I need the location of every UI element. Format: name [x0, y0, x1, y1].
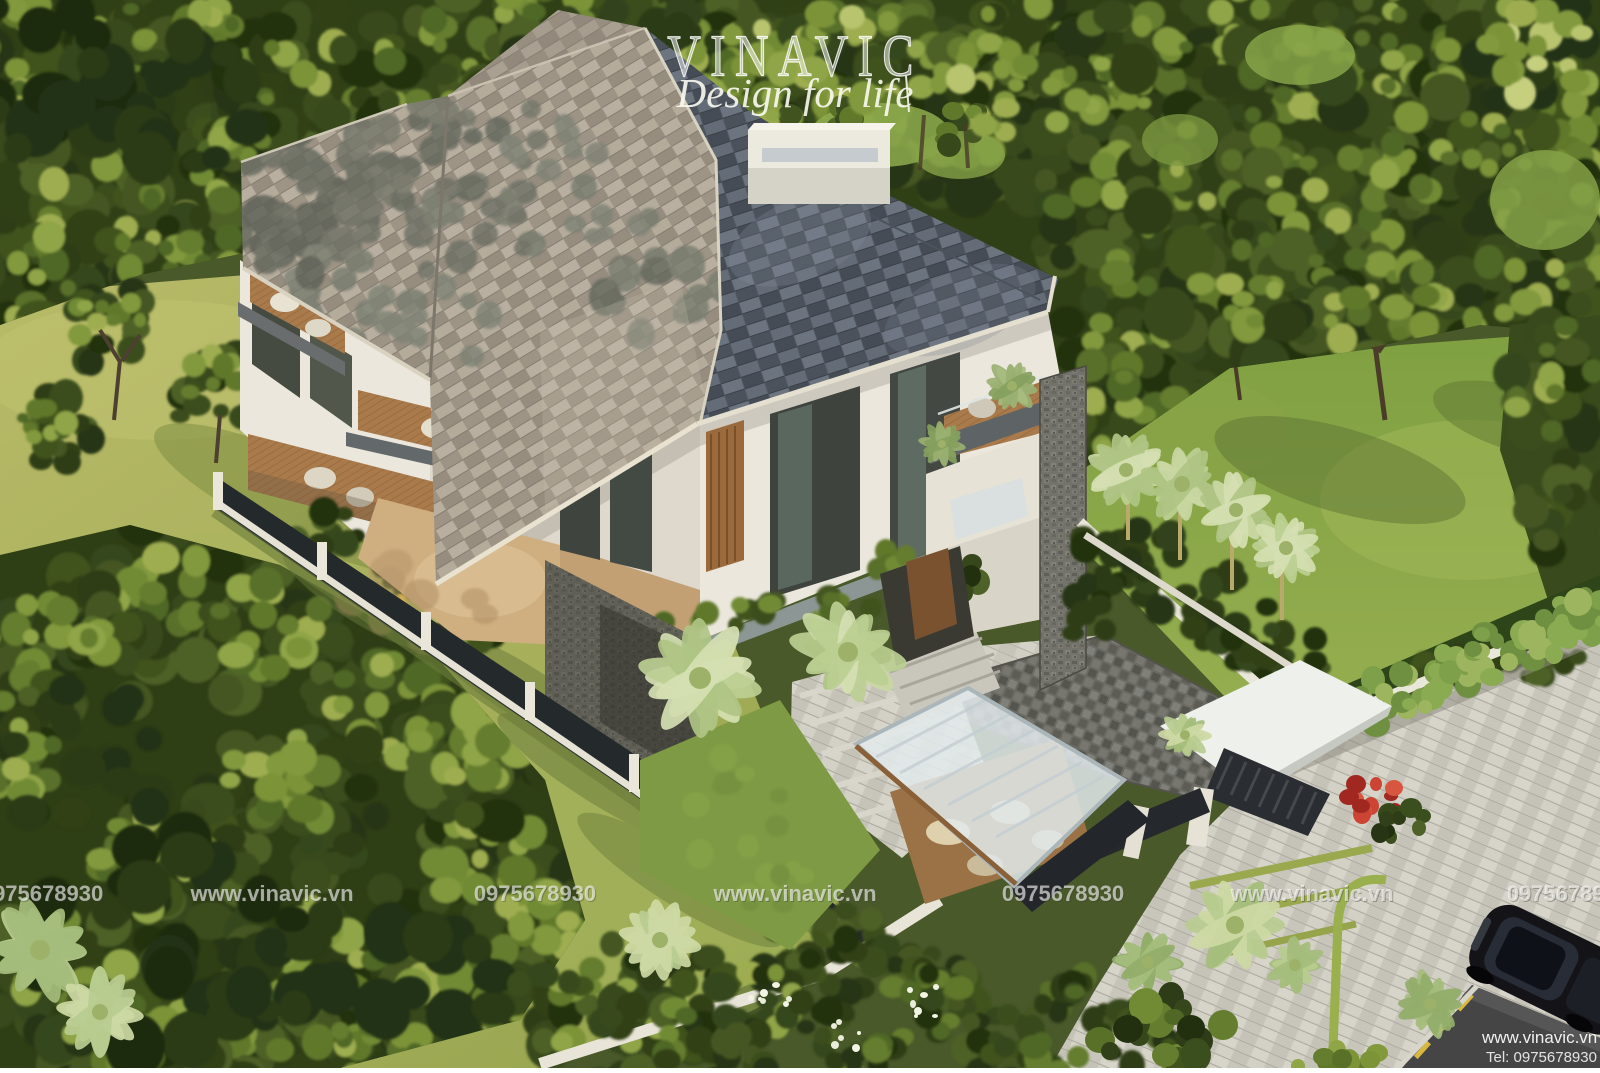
svg-text:www.vinavic.vn: www.vinavic.vn	[1229, 881, 1393, 906]
svg-text:0975678930: 0975678930	[0, 881, 103, 906]
svg-text:Tel: 0975678930: Tel: 0975678930	[1486, 1049, 1597, 1066]
svg-text:www.vinavic.vn: www.vinavic.vn	[189, 881, 353, 906]
svg-text:www.vinavic.vn: www.vinavic.vn	[1481, 1028, 1597, 1047]
svg-text:0975678930: 0975678930	[1507, 881, 1600, 906]
svg-text:0975678930: 0975678930	[474, 881, 596, 906]
svg-text:Design for life: Design for life	[676, 70, 914, 116]
svg-text:www.vinavic.vn: www.vinavic.vn	[712, 881, 876, 906]
svg-text:0975678930: 0975678930	[1002, 881, 1124, 906]
